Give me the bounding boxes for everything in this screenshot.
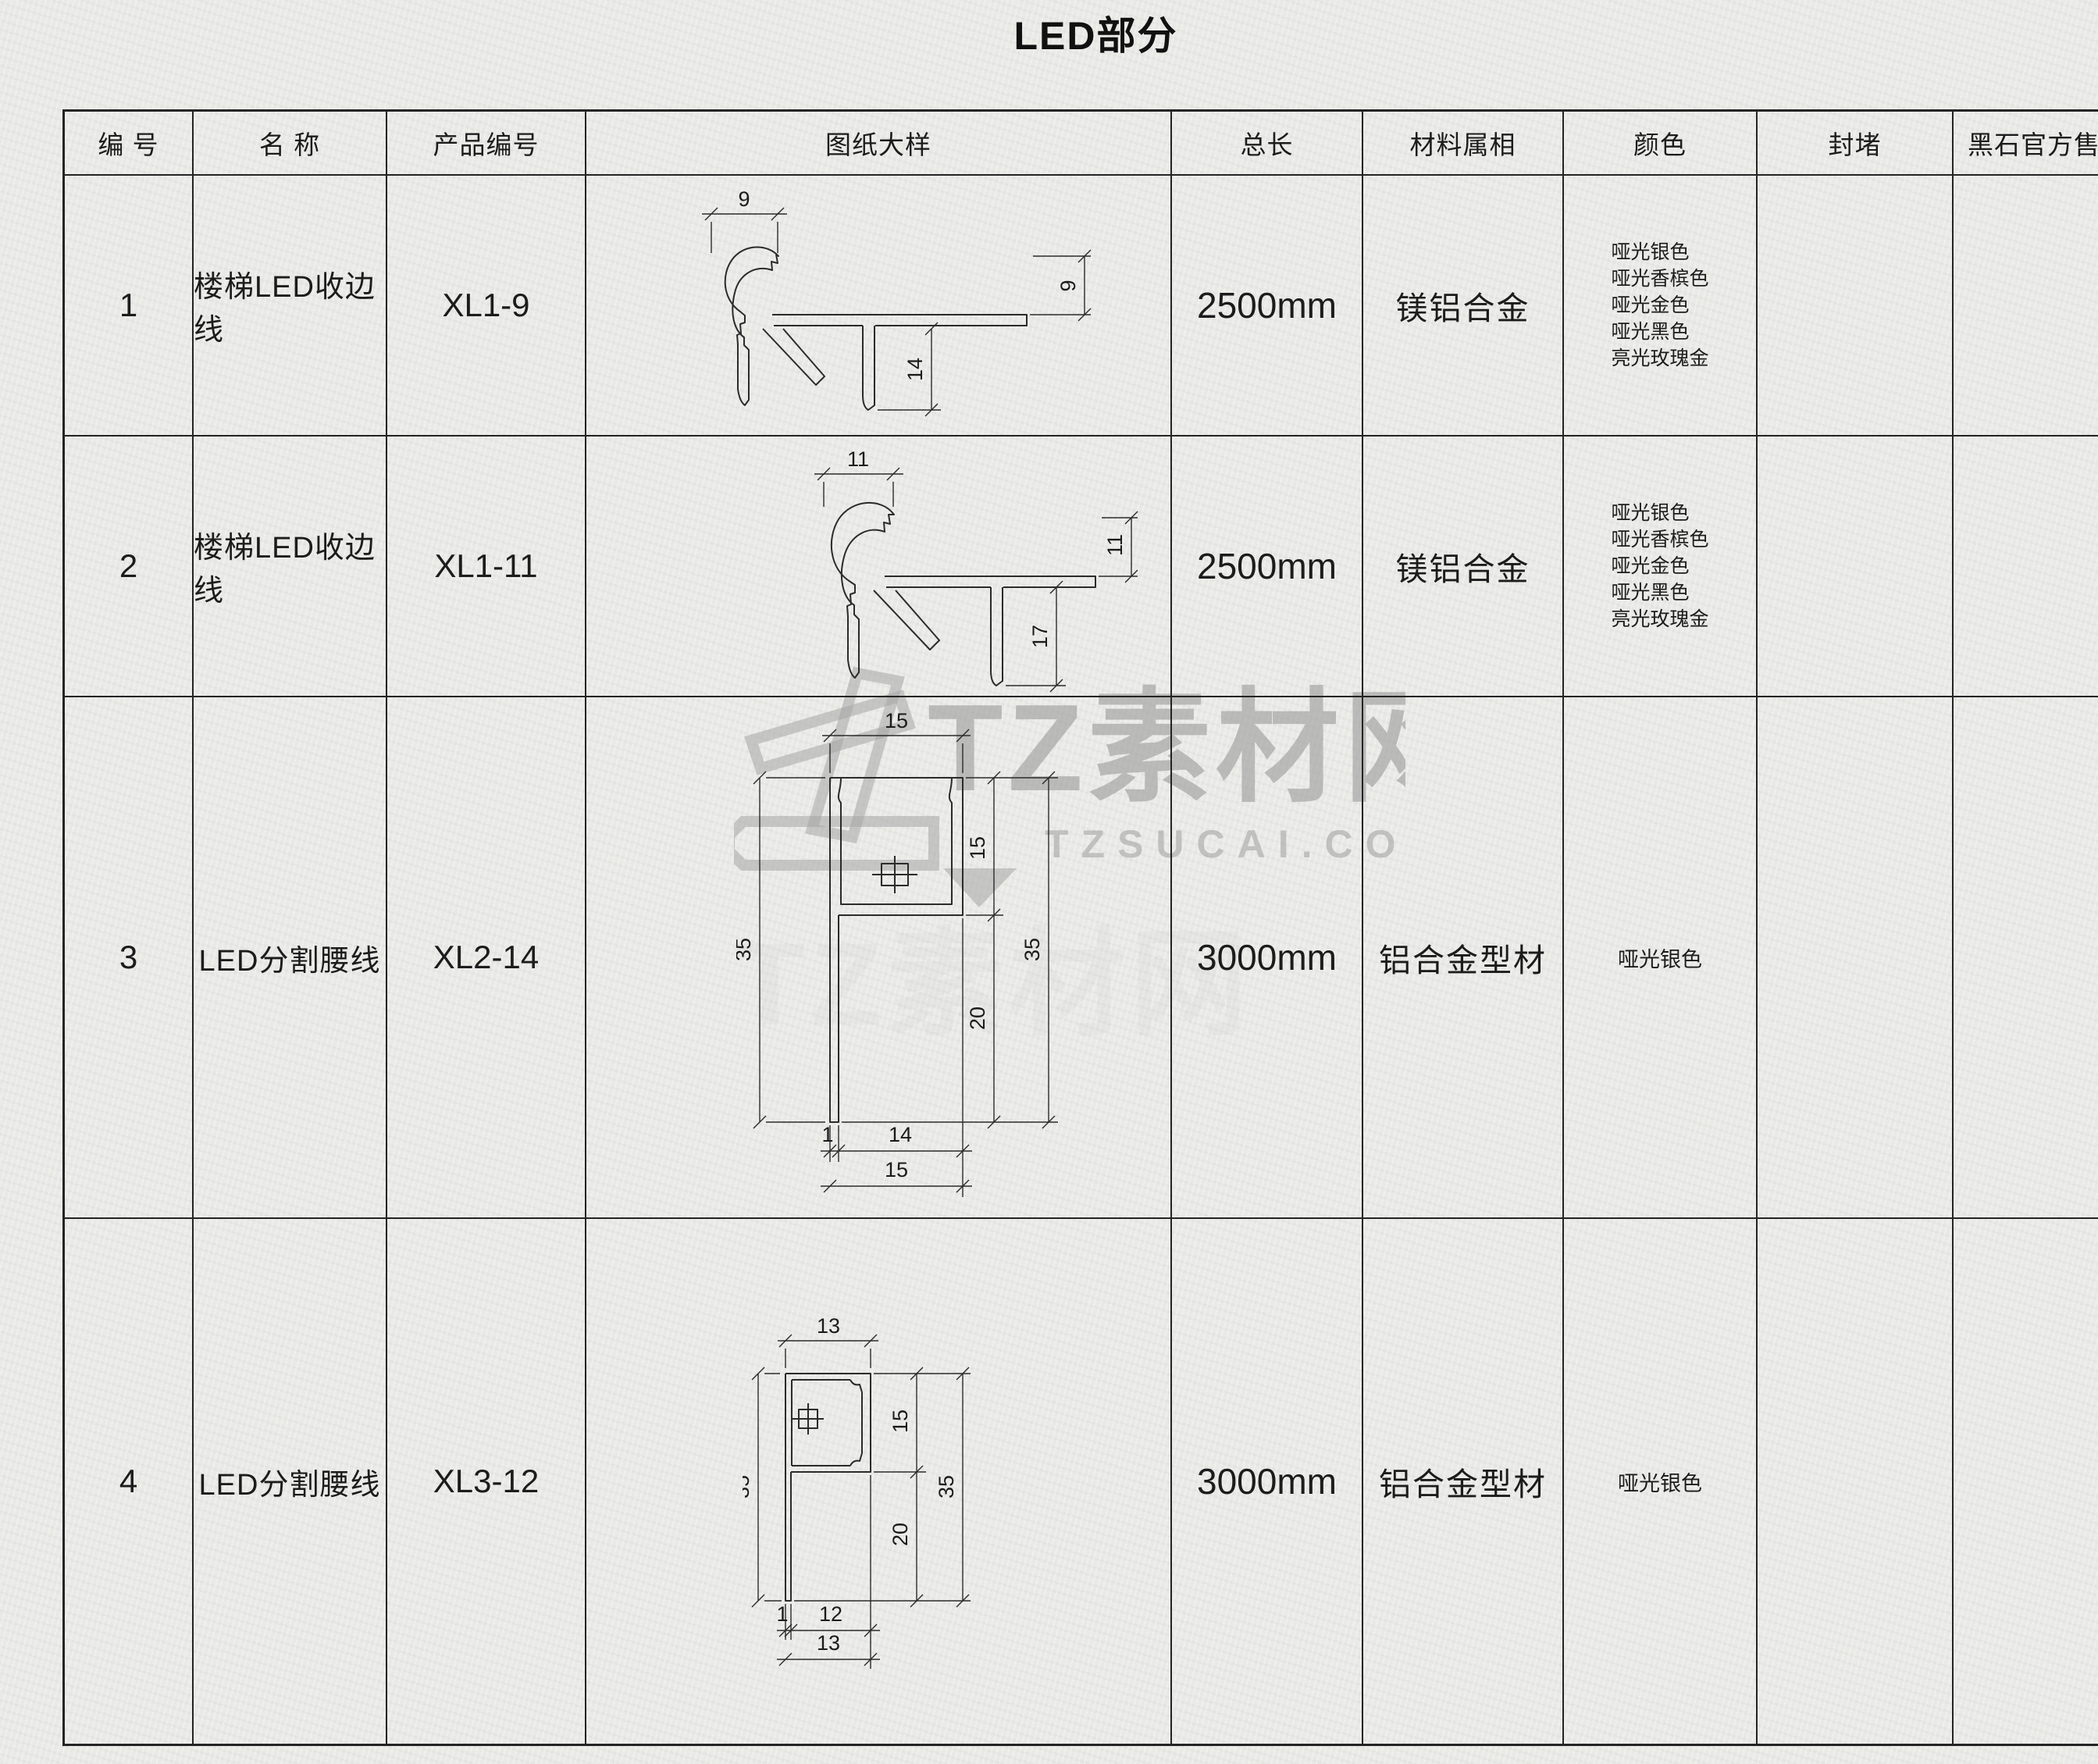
cell-price-4 xyxy=(1954,1219,2098,1744)
cell-price-2 xyxy=(1954,437,2098,697)
cell-length-2: 2500mm xyxy=(1172,437,1363,697)
cell-length-3: 3000mm xyxy=(1172,697,1363,1219)
cell-seal-4 xyxy=(1758,1219,1954,1744)
profile-outline xyxy=(832,503,1095,686)
dimension-lines: 9 9 14 xyxy=(702,187,1091,416)
cell-seal-3 xyxy=(1758,697,1954,1219)
cell-drawing-1: 9 9 14 xyxy=(586,176,1172,437)
cell-code-3: XL2-14 xyxy=(387,697,586,1219)
profile-outline xyxy=(725,247,1027,410)
cell-seal-2 xyxy=(1758,437,1954,697)
cell-colors-2: 哑光银色 哑光香槟色 哑光金色 哑光黑色 亮光玫瑰金 xyxy=(1564,437,1758,697)
header-color: 颜色 xyxy=(1564,112,1758,176)
cell-material-4: 铝合金型材 xyxy=(1363,1219,1564,1744)
cell-length-1: 2500mm xyxy=(1172,176,1363,437)
dim-bottom-total: 15 xyxy=(885,1158,908,1181)
dim-left: 35 xyxy=(743,1475,753,1499)
dim-stem: 14 xyxy=(903,358,927,381)
dim-right: 9 xyxy=(1056,280,1080,291)
drawing-xl2-14: 15 35 15 20 35 1 14 15 xyxy=(736,700,1095,1215)
dim-bottom-inner: 12 xyxy=(819,1602,842,1626)
dim-right-outer: 35 xyxy=(935,1475,958,1499)
cell-name-2: 楼梯LED收边线 xyxy=(194,437,387,697)
profile-outline xyxy=(830,778,963,1122)
cell-colors-3: 哑光银色 xyxy=(1564,697,1758,1219)
cell-no-1: 1 xyxy=(65,176,194,437)
dim-bottom-leg: 1 xyxy=(821,1123,833,1146)
cell-no-2: 2 xyxy=(65,437,194,697)
cell-code-1: XL1-9 xyxy=(387,176,586,437)
drawing-xl3-12: 13 35 15 20 35 1 12 13 xyxy=(743,1290,1102,1696)
dim-right-lower: 20 xyxy=(889,1523,912,1546)
cell-price-3 xyxy=(1954,697,2098,1219)
cell-material-2: 镁铝合金 xyxy=(1363,437,1564,697)
dimension-lines: 11 11 17 xyxy=(814,451,1138,692)
cell-colors-1: 哑光银色 哑光香槟色 哑光金色 哑光黑色 亮光玫瑰金 xyxy=(1564,176,1758,437)
spec-table: 编 号 名 称 产品编号 图纸大样 总长 材料属相 颜色 封堵 黑石官方售价 1… xyxy=(62,109,2098,1746)
cell-drawing-2: 11 11 17 xyxy=(586,437,1172,697)
cell-no-3: 3 xyxy=(65,697,194,1219)
cell-seal-1 xyxy=(1758,176,1954,437)
dim-right: 11 xyxy=(1103,534,1127,556)
header-no: 编 号 xyxy=(65,112,194,176)
cell-price-1 xyxy=(1954,176,2098,437)
drawing-xl1-11: 11 11 17 xyxy=(807,451,1142,693)
header-seal: 封堵 xyxy=(1758,112,1954,176)
cell-code-2: XL1-11 xyxy=(387,437,586,697)
cell-no-4: 4 xyxy=(65,1219,194,1744)
cell-material-3: 铝合金型材 xyxy=(1363,697,1564,1219)
header-drawing: 图纸大样 xyxy=(586,112,1172,176)
header-material: 材料属相 xyxy=(1363,112,1564,176)
cell-material-1: 镁铝合金 xyxy=(1363,176,1564,437)
cell-drawing-4: 13 35 15 20 35 1 12 13 xyxy=(586,1219,1172,1744)
dim-top: 11 xyxy=(847,451,869,471)
dim-top: 9 xyxy=(738,187,750,211)
profile-outline xyxy=(785,1374,871,1601)
dim-right-upper: 15 xyxy=(966,836,989,860)
header-length: 总长 xyxy=(1172,112,1363,176)
dim-right-lower: 20 xyxy=(966,1007,989,1030)
cell-length-4: 3000mm xyxy=(1172,1219,1363,1744)
dim-left: 35 xyxy=(736,938,755,961)
dimension-lines: 15 35 15 20 35 1 14 15 xyxy=(736,709,1058,1197)
dim-top: 15 xyxy=(885,709,908,732)
dim-bottom-inner: 14 xyxy=(889,1123,912,1146)
drawing-xl1-9: 9 9 14 xyxy=(696,184,1133,426)
dim-top: 13 xyxy=(817,1314,840,1338)
dim-stem: 17 xyxy=(1028,625,1052,648)
header-price: 黑石官方售价 xyxy=(1954,112,2098,176)
cell-code-4: XL3-12 xyxy=(387,1219,586,1744)
dimension-lines: 13 35 15 20 35 1 12 13 xyxy=(743,1314,971,1669)
cell-name-3: LED分割腰线 xyxy=(194,697,387,1219)
cell-name-1: 楼梯LED收边线 xyxy=(194,176,387,437)
cell-colors-4: 哑光银色 xyxy=(1564,1219,1758,1744)
dim-right-upper: 15 xyxy=(889,1409,912,1433)
dim-right-outer: 35 xyxy=(1021,938,1044,961)
page-title: LED部分 xyxy=(94,5,2098,61)
dim-bottom-total: 13 xyxy=(817,1631,840,1655)
header-name: 名 称 xyxy=(194,112,387,176)
header-code: 产品编号 xyxy=(387,112,586,176)
cell-name-4: LED分割腰线 xyxy=(194,1219,387,1744)
cell-drawing-3: 15 35 15 20 35 1 14 15 xyxy=(586,697,1172,1219)
dim-bottom-leg: 1 xyxy=(776,1602,788,1626)
